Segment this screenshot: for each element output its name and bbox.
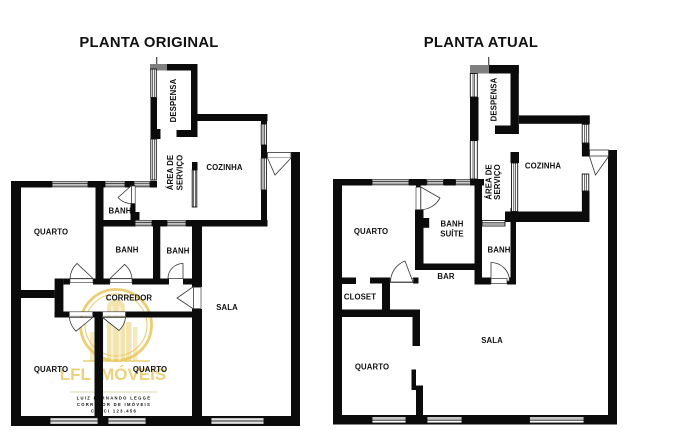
svg-text:DESPENSA: DESPENSA bbox=[490, 77, 499, 121]
svg-text:BANH: BANH bbox=[441, 220, 464, 229]
svg-text:PLANTA ORIGINAL: PLANTA ORIGINAL bbox=[79, 35, 218, 51]
svg-text:SERVIÇO: SERVIÇO bbox=[176, 155, 185, 191]
svg-text:DESPENSA: DESPENSA bbox=[169, 78, 178, 122]
svg-text:SALA: SALA bbox=[481, 336, 503, 345]
svg-text:ÁREA DE: ÁREA DE bbox=[166, 155, 175, 191]
svg-text:SUÍTE: SUÍTE bbox=[440, 230, 463, 239]
svg-text:BANH: BANH bbox=[167, 247, 190, 256]
svg-text:COZINHA: COZINHA bbox=[525, 162, 561, 171]
svg-text:CORRETOR DE IMÓVEIS: CORRETOR DE IMÓVEIS bbox=[77, 402, 151, 407]
svg-text:COZINHA: COZINHA bbox=[206, 163, 242, 172]
svg-text:BANH: BANH bbox=[488, 246, 511, 255]
svg-text:CLOSET: CLOSET bbox=[344, 293, 376, 302]
svg-text:LUIZ FERNANDO LEGGE: LUIZ FERNANDO LEGGE bbox=[77, 396, 152, 401]
svg-text:CORREDOR: CORREDOR bbox=[106, 294, 153, 303]
svg-text:BANH: BANH bbox=[116, 245, 139, 254]
svg-text:QUARTO: QUARTO bbox=[133, 365, 167, 374]
svg-text:SALA: SALA bbox=[216, 303, 238, 312]
svg-text:BANH: BANH bbox=[109, 207, 132, 216]
svg-text:PLANTA ATUAL: PLANTA ATUAL bbox=[424, 35, 539, 51]
svg-text:SERVIÇO: SERVIÇO bbox=[493, 164, 502, 200]
svg-text:BAR: BAR bbox=[437, 272, 454, 281]
svg-text:QUARTO: QUARTO bbox=[34, 228, 68, 237]
svg-text:QUARTO: QUARTO bbox=[354, 227, 388, 236]
svg-text:QUARTO: QUARTO bbox=[34, 365, 68, 374]
svg-text:QUARTO: QUARTO bbox=[355, 363, 389, 372]
